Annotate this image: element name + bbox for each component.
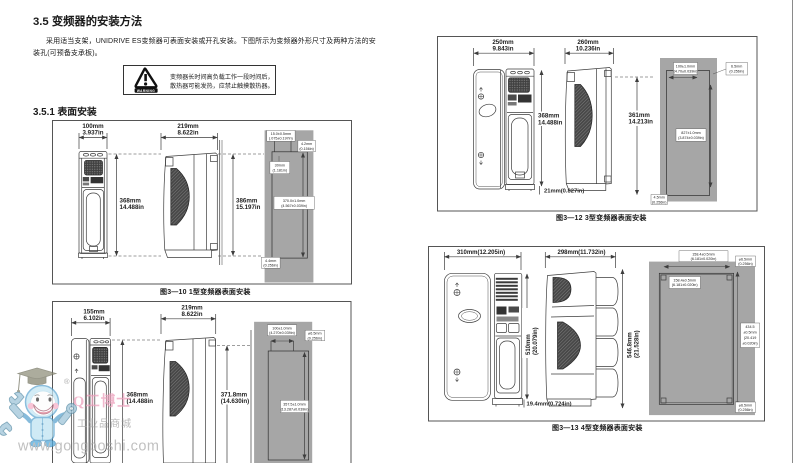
svg-text:(20.079in): (20.079in) — [533, 327, 539, 355]
svg-text:(0.256in): (0.256in) — [263, 264, 278, 268]
svg-text:8.622in: 8.622in — [178, 129, 199, 136]
svg-text:546.8mm: 546.8mm — [628, 332, 634, 358]
svg-text:Q工博士: Q工博士 — [73, 392, 132, 410]
svg-text:30mm: 30mm — [275, 164, 285, 168]
svg-text:310mm(12.205in): 310mm(12.205in) — [457, 250, 505, 256]
svg-text:(4.70±0.039in): (4.70±0.039in) — [674, 69, 698, 73]
svg-text:(0.256in): (0.256in) — [652, 200, 667, 204]
svg-text:(21.528in): (21.528in) — [634, 330, 640, 358]
svg-text:(0.256in): (0.256in) — [738, 408, 753, 412]
svg-text:6.102in: 6.102in — [84, 315, 105, 322]
svg-text:工业品商城: 工业品商城 — [77, 417, 132, 430]
svg-text:(4.270±0.039in): (4.270±0.039in) — [269, 331, 295, 335]
svg-text:(1.181in): (1.181in) — [273, 168, 288, 172]
svg-text:(0.156in): (0.156in) — [299, 147, 314, 151]
svg-text:(13.287±0.039in): (13.287±0.039in) — [281, 407, 309, 411]
svg-text:±0.020in): ±0.020in) — [742, 342, 757, 346]
svg-text:158.4±0.5mm: 158.4±0.5mm — [692, 253, 715, 257]
svg-text:3.937in: 3.937in — [83, 129, 104, 136]
svg-text:4.5mm: 4.5mm — [654, 196, 665, 200]
svg-text:100±1.0mm: 100±1.0mm — [272, 327, 291, 331]
svg-text:9.843in: 9.843in — [493, 45, 514, 52]
svg-text:21mm(0.827in): 21mm(0.827in) — [544, 188, 584, 194]
svg-text:100±1.0mm: 100±1.0mm — [676, 65, 695, 69]
svg-text:(0.256in): (0.256in) — [729, 69, 744, 73]
svg-text:15.0±0.5mm: 15.0±0.5mm — [271, 132, 291, 136]
svg-text:⌀6.5mm: ⌀6.5mm — [739, 404, 753, 408]
svg-text:⌀6.5mm: ⌀6.5mm — [739, 258, 753, 262]
svg-text:370.0±1.0mm: 370.0±1.0mm — [283, 199, 306, 203]
svg-text:434.5: 434.5 — [745, 325, 754, 329]
svg-text:®: ® — [64, 377, 70, 386]
svg-text:15.197in: 15.197in — [236, 204, 261, 211]
svg-text:827±1.0mm: 827±1.0mm — [681, 131, 700, 135]
svg-text:(3.874±0.039in): (3.874±0.039in) — [678, 136, 704, 140]
svg-text:(0.256in): (0.256in) — [738, 262, 753, 266]
svg-text:357.5±1.0mm: 357.5±1.0mm — [283, 402, 306, 406]
svg-text:±0.5mm: ±0.5mm — [743, 331, 756, 335]
svg-text:(6.181±0.020in): (6.181±0.020in) — [672, 283, 698, 287]
svg-text:14.488in: 14.488in — [538, 119, 563, 126]
svg-text:(4.567±0.039in): (4.567±0.039in) — [281, 204, 307, 208]
svg-text:www.gongboshi.com: www.gongboshi.com — [17, 439, 160, 455]
svg-text:14.488in: 14.488in — [120, 204, 145, 211]
svg-text:(14.630in): (14.630in) — [221, 398, 250, 405]
svg-text:298mm(11.732in): 298mm(11.732in) — [557, 250, 605, 256]
svg-text:8.622in: 8.622in — [182, 311, 203, 318]
svg-text:4.4mm: 4.4mm — [265, 259, 276, 263]
svg-text:158.4±0.5mm: 158.4±0.5mm — [673, 279, 696, 283]
svg-text:(20.419: (20.419 — [744, 336, 757, 340]
svg-text:510mm: 510mm — [526, 334, 532, 355]
svg-text:(0.256in): (0.256in) — [308, 336, 323, 340]
svg-text:6.5mm: 6.5mm — [731, 65, 742, 69]
svg-text:⌀6.5mm: ⌀6.5mm — [308, 332, 322, 336]
svg-text:(6.181±0.020in): (6.181±0.020in) — [691, 257, 717, 261]
svg-text:14.213in: 14.213in — [629, 119, 654, 126]
svg-text:19.4mm(0.724in): 19.4mm(0.724in) — [527, 401, 572, 407]
svg-text:4.2mm: 4.2mm — [301, 142, 312, 146]
svg-text:(.075±0.197in): (.075±0.197in) — [269, 137, 293, 141]
svg-text:10.236in: 10.236in — [576, 45, 601, 52]
